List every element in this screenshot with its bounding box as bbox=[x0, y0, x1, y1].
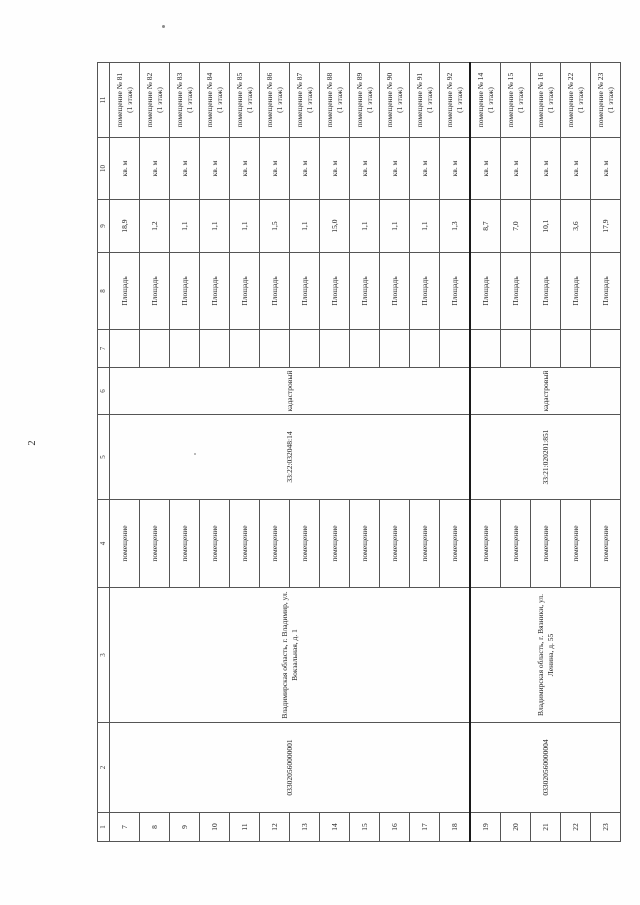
area-value-cell: 8,7 bbox=[470, 200, 501, 253]
area-value-cell: 1,5 bbox=[260, 200, 290, 253]
param-name-cell: Площадь bbox=[440, 253, 471, 330]
object-name-cell: помещение № 23(1 этаж) bbox=[591, 63, 621, 138]
unit-cell: кв. м bbox=[410, 138, 440, 200]
unit-cell: кв. м bbox=[290, 138, 320, 200]
object-type-cell: помещение bbox=[320, 500, 350, 588]
area-value-cell: 17,9 bbox=[591, 200, 621, 253]
row-number-cell: 9 bbox=[170, 813, 200, 842]
number-type-cell: кадастровый bbox=[470, 368, 621, 415]
empty-cell bbox=[320, 330, 350, 368]
column-numbers-row: 1 2 3 4 5 6 7 8 9 10 11 bbox=[98, 63, 110, 842]
row-number-cell: 23 bbox=[591, 813, 621, 842]
row-number-cell: 8 bbox=[140, 813, 170, 842]
cadastral-number-cell: 33:21:020201:851 bbox=[470, 415, 621, 500]
area-value-cell: 7,0 bbox=[501, 200, 531, 253]
param-name-cell: Площадь bbox=[350, 253, 380, 330]
empty-cell bbox=[230, 330, 260, 368]
object-type-cell: помещение bbox=[470, 500, 501, 588]
object-name-cell: помещение № 83(1 этаж) bbox=[170, 63, 200, 138]
param-name-cell: Площадь bbox=[200, 253, 230, 330]
object-name-cell: помещение № 87(1 этаж) bbox=[290, 63, 320, 138]
unit-cell: кв. м bbox=[320, 138, 350, 200]
object-name-cell: помещение № 81(1 этаж) bbox=[110, 63, 140, 138]
empty-cell bbox=[170, 330, 200, 368]
object-type-cell: помещение bbox=[531, 500, 561, 588]
empty-cell bbox=[501, 330, 531, 368]
area-value-cell: 10,1 bbox=[531, 200, 561, 253]
param-name-cell: Площадь bbox=[470, 253, 501, 330]
area-value-cell: 1,1 bbox=[170, 200, 200, 253]
empty-cell bbox=[440, 330, 471, 368]
object-type-cell: помещение bbox=[260, 500, 290, 588]
address-cell: Владимирская область, г. Вязники, ул. Ле… bbox=[470, 588, 621, 723]
empty-cell bbox=[410, 330, 440, 368]
object-name-cell: помещение № 16(1 этаж) bbox=[531, 63, 561, 138]
cadastral-number-cell: 33:22:032048:14 bbox=[110, 415, 471, 500]
area-value-cell: 3,6 bbox=[561, 200, 591, 253]
row-number-cell: 17 bbox=[410, 813, 440, 842]
param-name-cell: Площадь bbox=[110, 253, 140, 330]
unit-cell: кв. м bbox=[591, 138, 621, 200]
row-number-cell: 11 bbox=[230, 813, 260, 842]
unit-cell: кв. м bbox=[561, 138, 591, 200]
param-name-cell: Площадь bbox=[230, 253, 260, 330]
area-value-cell: 1,1 bbox=[230, 200, 260, 253]
object-type-cell: помещение bbox=[410, 500, 440, 588]
row-number-cell: 20 bbox=[501, 813, 531, 842]
rotated-landscape-layer: 2 1 2 3 4 5 6 7 8 9 10 11 bbox=[0, 0, 640, 905]
column-number: 9 bbox=[98, 200, 110, 253]
param-name-cell: Площадь bbox=[140, 253, 170, 330]
row-number-cell: 19 bbox=[470, 813, 501, 842]
object-type-cell: помещение bbox=[110, 500, 140, 588]
object-name-cell: помещение № 14(1 этаж) bbox=[470, 63, 501, 138]
registry-number-cell: 033020560000004 bbox=[470, 723, 621, 813]
row-number-cell: 21 bbox=[531, 813, 561, 842]
area-value-cell: 1,1 bbox=[290, 200, 320, 253]
unit-cell: кв. м bbox=[200, 138, 230, 200]
empty-cell bbox=[561, 330, 591, 368]
empty-cell bbox=[591, 330, 621, 368]
table-row: 7 033020560000001 Владимирская область, … bbox=[110, 63, 140, 842]
object-type-cell: помещение bbox=[591, 500, 621, 588]
area-value-cell: 18,9 bbox=[110, 200, 140, 253]
param-name-cell: Площадь bbox=[260, 253, 290, 330]
object-type-cell: помещение bbox=[200, 500, 230, 588]
row-number-cell: 10 bbox=[200, 813, 230, 842]
object-name-cell: помещение № 92(1 этаж) bbox=[440, 63, 471, 138]
unit-cell: кв. м bbox=[110, 138, 140, 200]
object-name-cell: помещение № 90(1 этаж) bbox=[380, 63, 410, 138]
area-value-cell: 1,1 bbox=[380, 200, 410, 253]
object-type-cell: помещение bbox=[290, 500, 320, 588]
object-type-cell: помещение bbox=[501, 500, 531, 588]
registry-table: 1 2 3 4 5 6 7 8 9 10 11 7 03302056000000… bbox=[97, 62, 621, 842]
row-number-cell: 12 bbox=[260, 813, 290, 842]
area-value-cell: 1,1 bbox=[200, 200, 230, 253]
object-type-cell: помещение bbox=[170, 500, 200, 588]
unit-cell: кв. м bbox=[440, 138, 471, 200]
unit-cell: кв. м bbox=[501, 138, 531, 200]
object-name-cell: помещение № 85(1 этаж) bbox=[230, 63, 260, 138]
area-value-cell: 1,1 bbox=[350, 200, 380, 253]
param-name-cell: Площадь bbox=[410, 253, 440, 330]
object-type-cell: помещение bbox=[230, 500, 260, 588]
empty-cell bbox=[110, 330, 140, 368]
object-name-cell: помещение № 86(1 этаж) bbox=[260, 63, 290, 138]
empty-cell bbox=[200, 330, 230, 368]
row-number-cell: 14 bbox=[320, 813, 350, 842]
object-type-cell: помещение bbox=[561, 500, 591, 588]
object-type-cell: помещение bbox=[140, 500, 170, 588]
empty-cell bbox=[350, 330, 380, 368]
unit-cell: кв. м bbox=[260, 138, 290, 200]
table-row: 19 033020560000004 Владимирская область,… bbox=[470, 63, 501, 842]
param-name-cell: Площадь bbox=[591, 253, 621, 330]
object-name-cell: помещение № 15(1 этаж) bbox=[501, 63, 531, 138]
scan-speck bbox=[162, 25, 165, 28]
column-number: 8 bbox=[98, 253, 110, 330]
column-number: 6 bbox=[98, 368, 110, 415]
column-number: 3 bbox=[98, 588, 110, 723]
number-type-cell: кадастровый bbox=[110, 368, 471, 415]
unit-cell: кв. м bbox=[380, 138, 410, 200]
registry-number-cell: 033020560000001 bbox=[110, 723, 471, 813]
param-name-cell: Площадь bbox=[290, 253, 320, 330]
param-name-cell: Площадь bbox=[170, 253, 200, 330]
object-name-cell: помещение № 88(1 этаж) bbox=[320, 63, 350, 138]
param-name-cell: Площадь bbox=[380, 253, 410, 330]
column-number: 5 bbox=[98, 415, 110, 500]
area-value-cell: 15,0 bbox=[320, 200, 350, 253]
empty-cell bbox=[470, 330, 501, 368]
unit-cell: кв. м bbox=[140, 138, 170, 200]
row-number-cell: 22 bbox=[561, 813, 591, 842]
unit-cell: кв. м bbox=[170, 138, 200, 200]
object-type-cell: помещение bbox=[440, 500, 471, 588]
column-number: 1 bbox=[98, 813, 110, 842]
column-number: 2 bbox=[98, 723, 110, 813]
param-name-cell: Площадь bbox=[531, 253, 561, 330]
empty-cell bbox=[531, 330, 561, 368]
object-type-cell: помещение bbox=[350, 500, 380, 588]
empty-cell bbox=[260, 330, 290, 368]
empty-cell bbox=[380, 330, 410, 368]
object-name-cell: помещение № 91(1 этаж) bbox=[410, 63, 440, 138]
object-name-cell: помещение № 89(1 этаж) bbox=[350, 63, 380, 138]
unit-cell: кв. м bbox=[350, 138, 380, 200]
param-name-cell: Площадь bbox=[501, 253, 531, 330]
area-value-cell: 1,1 bbox=[410, 200, 440, 253]
object-name-cell: помещение № 82(1 этаж) bbox=[140, 63, 170, 138]
row-number-cell: 15 bbox=[350, 813, 380, 842]
empty-cell bbox=[290, 330, 320, 368]
unit-cell: кв. м bbox=[230, 138, 260, 200]
empty-cell bbox=[140, 330, 170, 368]
document-page: 2 1 2 3 4 5 6 7 8 9 10 11 bbox=[0, 0, 640, 905]
column-number: 11 bbox=[98, 63, 110, 138]
column-number: 10 bbox=[98, 138, 110, 200]
row-number-cell: 7 bbox=[110, 813, 140, 842]
row-number-cell: 18 bbox=[440, 813, 471, 842]
param-name-cell: Площадь bbox=[561, 253, 591, 330]
row-number-cell: 13 bbox=[290, 813, 320, 842]
object-type-cell: помещение bbox=[380, 500, 410, 588]
unit-cell: кв. м bbox=[470, 138, 501, 200]
address-cell: Владимирская область, г. Владимир, ул. В… bbox=[110, 588, 471, 723]
column-number: 4 bbox=[98, 500, 110, 588]
area-value-cell: 1,2 bbox=[140, 200, 170, 253]
object-name-cell: помещение № 84(1 этаж) bbox=[200, 63, 230, 138]
param-name-cell: Площадь bbox=[320, 253, 350, 330]
unit-cell: кв. м bbox=[531, 138, 561, 200]
object-name-cell: помещение № 22(1 этаж) bbox=[561, 63, 591, 138]
page-number: 2 bbox=[27, 433, 38, 453]
area-value-cell: 1,3 bbox=[440, 200, 471, 253]
column-number: 7 bbox=[98, 330, 110, 368]
row-number-cell: 16 bbox=[380, 813, 410, 842]
